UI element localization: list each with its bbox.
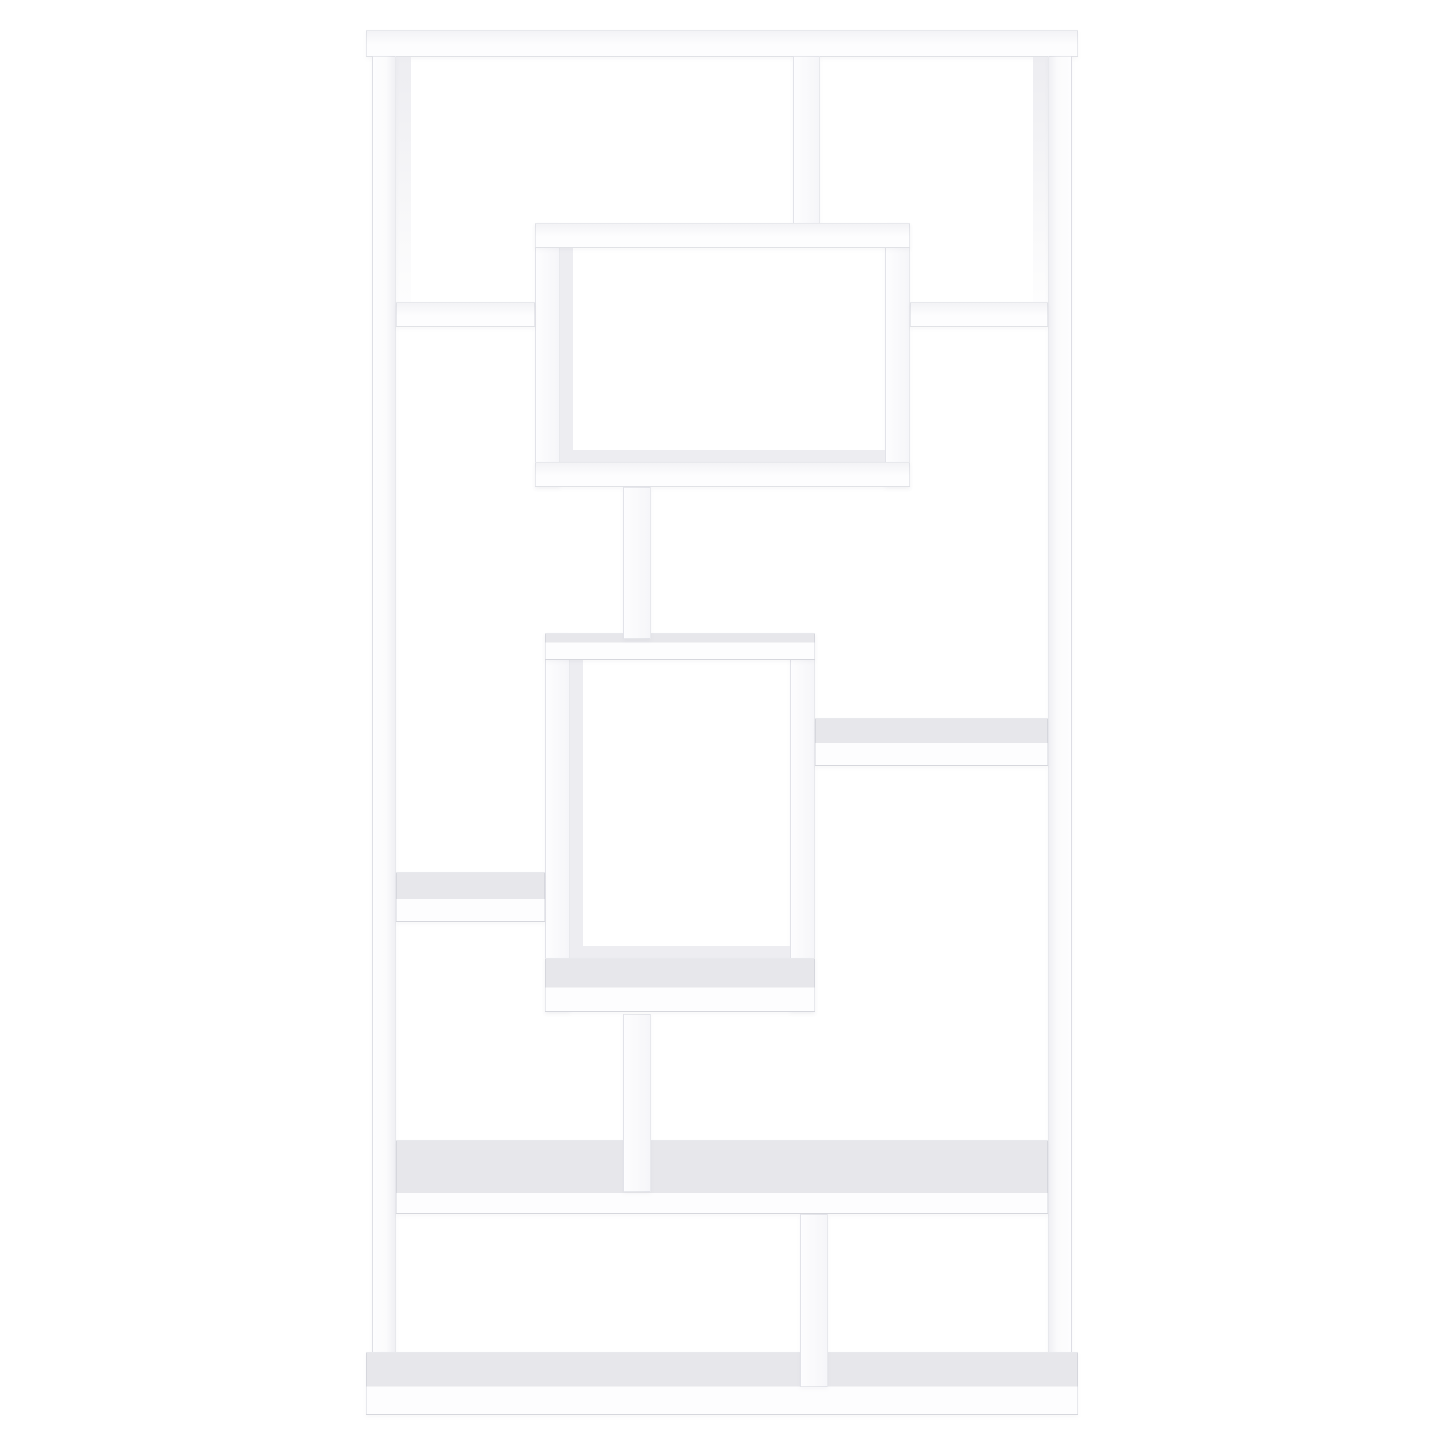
upper-cube-bottom-shelf — [535, 462, 910, 487]
middle-cube-left-wall — [545, 633, 570, 1012]
middle-cube-inner-left-face — [570, 660, 583, 946]
upper-left-side-shelf — [396, 302, 535, 327]
upper-right-side-shelf — [910, 302, 1048, 327]
middle-cube-right-wall — [790, 633, 815, 1012]
left-panel-inner-face — [396, 57, 411, 327]
bottom-divider-post — [800, 1214, 828, 1387]
bottom-board — [366, 1352, 1078, 1415]
middle-cube-inner-bottom-face — [570, 946, 790, 958]
middle-cube-top-shelf — [545, 633, 815, 660]
upper-cube-top-shelf — [535, 223, 910, 248]
top-right-divider-post — [793, 56, 820, 228]
upper-cube-right-wall — [885, 223, 910, 487]
lower-left-side-shelf — [396, 872, 545, 922]
right-panel-inner-face — [1033, 57, 1048, 327]
right-side-panel — [1048, 56, 1072, 1358]
middle-cube-bottom-shelf — [545, 958, 815, 1012]
upper-cube-left-wall — [535, 223, 560, 487]
left-side-panel — [372, 56, 396, 1358]
middle-right-side-shelf — [815, 718, 1048, 766]
lower-wide-shelf — [396, 1140, 1048, 1214]
upper-connector-post — [623, 487, 651, 639]
lower-connector-post — [623, 1014, 651, 1192]
top-board — [366, 30, 1078, 57]
upper-cube-inner-left-face — [560, 248, 573, 460]
product-photo-stage — [0, 0, 1445, 1445]
